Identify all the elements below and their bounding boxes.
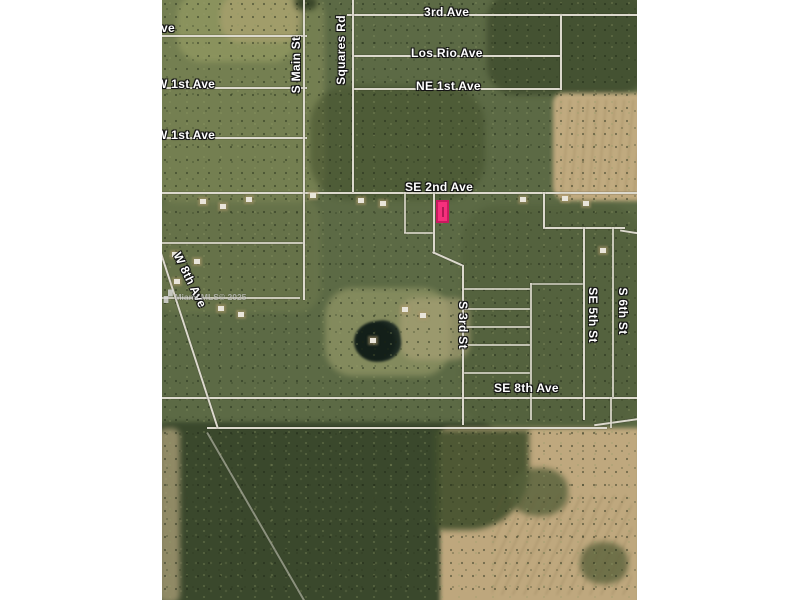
road-3rd-ave [347,14,637,16]
mls-watermark: ▞Miami MLS© 2025 [164,290,246,303]
street-label-se-2nd-ave: SE 2nd Ave [405,180,473,194]
field-streaks-bottom [492,495,632,595]
house [194,259,200,264]
street-label-se-5th-st: SE 5th St [586,287,600,342]
screenshot-canvas: ve W 1st Ave W 1st Ave 3rd Ave Los Rio A… [0,0,800,600]
satellite-map-image: ve W 1st Ave W 1st Ave 3rd Ave Los Rio A… [162,0,637,600]
house [358,198,364,203]
house [220,204,226,209]
house [600,248,606,253]
dark-blob-top-edge [295,0,317,10]
road-bottom-connector [610,397,612,428]
road-se-2nd-ave [162,192,637,194]
house [200,199,206,204]
road-marker-spur [404,232,434,234]
house [370,338,376,343]
street-label-w-1st-ave-lower: W 1st Ave [162,128,215,142]
road-ladder-mid [530,283,532,420]
road-loop-top-right [560,15,562,90]
road-field-edge [207,427,607,429]
right-margin [637,0,800,600]
street-label-3rd-ave: 3rd Ave [424,5,469,19]
mls-watermark-text: Miami MLS© 2025 [174,292,246,302]
road-hook-vertical [543,192,545,228]
road-rung-5 [462,372,530,374]
house [420,313,426,318]
road-s-main-st [303,0,305,300]
street-label-s-6th-st: S 6th St [616,287,630,334]
road-se-8th-ave [162,397,637,399]
house [310,193,316,198]
street-label-ne-1st-ave: NE 1st Ave [416,79,481,93]
street-label-los-rio-ave: Los Rio Ave [411,46,483,60]
street-label-squares-rd: Squares Rd [334,15,348,85]
road-ave-partial [162,35,307,37]
pale-strip-left-edge [162,428,180,600]
house [238,312,244,317]
property-marker-inner-mark [442,207,444,217]
street-label-s-main-st: S Main St [289,37,303,94]
street-label-s-3rd-st: S 3rd St [456,301,470,349]
mls-logo-watermark-icon: ▞ [164,291,172,303]
house [380,201,386,206]
road-rung-3 [462,326,530,328]
left-margin [0,0,162,600]
house [174,279,180,284]
road-se-5th-st [583,227,585,420]
road-rung-4 [462,344,530,346]
road-rung-2 [462,308,530,310]
street-label-ave-partial: ve [162,21,175,35]
road-rung-1 [462,288,530,290]
house [520,197,526,202]
house [218,306,224,311]
road-s-3rd-jog [432,251,464,267]
house [246,197,252,202]
road-rung-6 [530,283,583,285]
road-squares-rd [352,0,354,192]
street-label-se-8th-ave: SE 8th Ave [494,381,559,395]
tan-field-streaks [560,100,637,192]
street-label-w-1st-ave-upper: W 1st Ave [162,77,215,91]
property-marker [436,200,449,223]
house [583,201,589,206]
house [562,196,568,201]
road-s-3rd-upper [433,192,435,254]
road-s-6th-st [612,227,614,397]
road-marker-vertical [404,192,406,233]
road-left-block-1 [162,242,304,244]
house [402,307,408,312]
